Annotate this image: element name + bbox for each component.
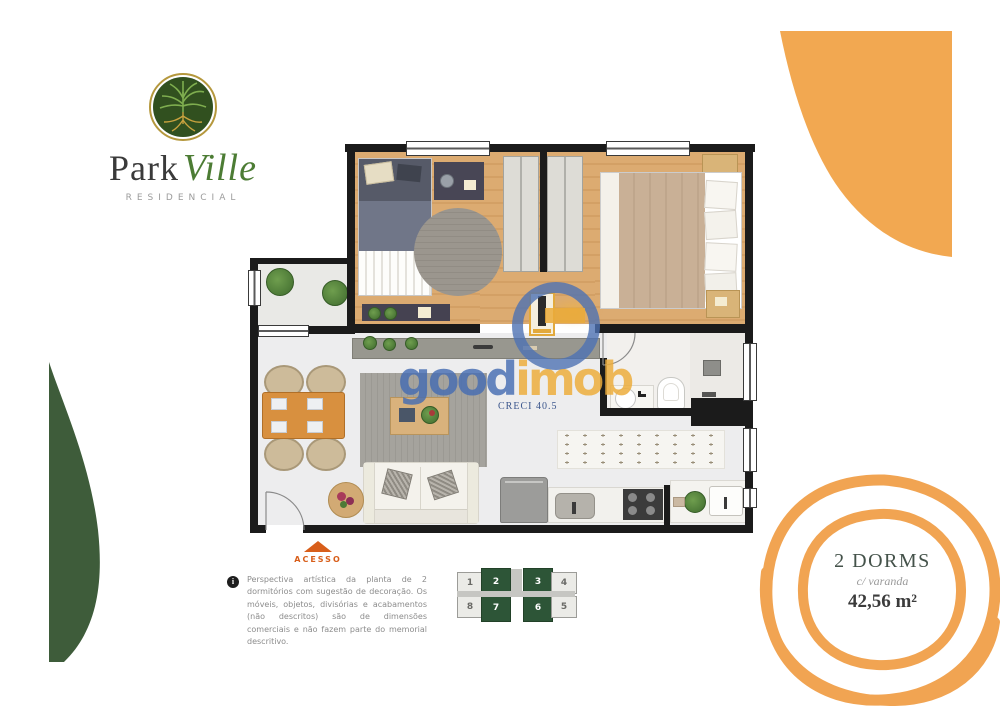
access-arrow-icon (304, 541, 332, 552)
keyplan-unit-6: 6 (523, 594, 553, 622)
floor-plan: goodimob CRECI 40.5 (246, 140, 758, 540)
leaf-shape-green (49, 362, 100, 662)
door-arcs (246, 140, 758, 540)
keyplan-unit-8: 8 (457, 596, 483, 618)
keyplan-unit-7: 7 (481, 594, 511, 622)
brand-park: Park (109, 148, 179, 188)
keyplan-corridor (457, 591, 575, 597)
unit-dorms: 2 DORMS (795, 550, 970, 573)
unit-area: 42,56 m² (795, 591, 970, 613)
keyplan-unit-5: 5 (551, 596, 577, 618)
access-label: ACESSO (278, 555, 358, 564)
tree-emblem-icon (148, 72, 218, 142)
disclaimer-text: Perspectiva artística da planta de 2 dor… (247, 574, 427, 648)
keyplan-core (510, 569, 522, 593)
info-icon: i (227, 576, 239, 588)
brochure-page: Park Ville RESIDENCIAL (0, 0, 1000, 706)
unit-feature: c/ varanda (795, 574, 970, 589)
keyplan: 1 2 3 4 8 7 6 5 (455, 563, 577, 625)
corner-blob-orange (780, 31, 952, 257)
unit-info: 2 DORMS c/ varanda 42,56 m² (795, 550, 970, 613)
highlighted-door (529, 292, 555, 336)
